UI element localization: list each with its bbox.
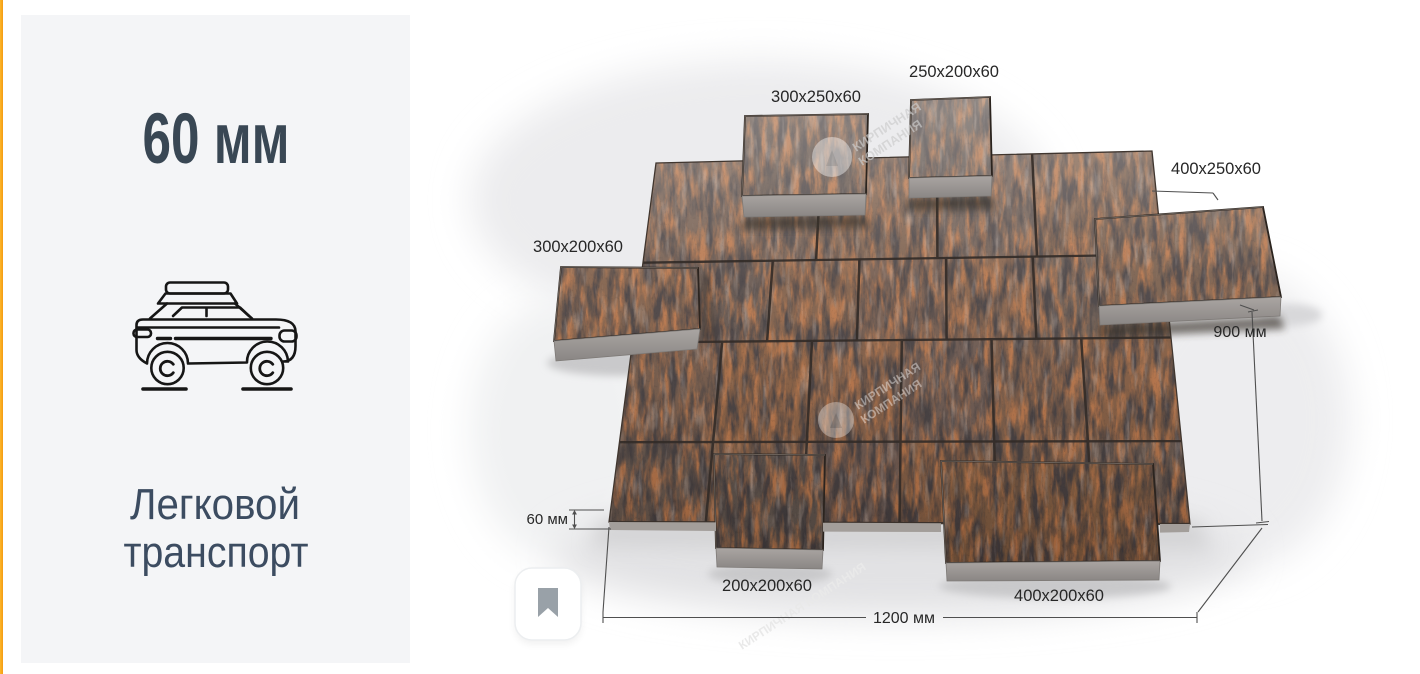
svg-text:900 мм: 900 мм: [1213, 324, 1266, 341]
svg-text:транспорт: транспорт: [124, 528, 309, 577]
svg-text:60 мм: 60 мм: [143, 100, 290, 179]
svg-text:250x200x60: 250x200x60: [909, 63, 999, 81]
svg-text:200x200x60: 200x200x60: [722, 577, 812, 595]
svg-text:300x200x60: 300x200x60: [533, 238, 623, 256]
svg-text:300x250x60: 300x250x60: [771, 88, 861, 106]
svg-text:60 мм: 60 мм: [527, 511, 568, 528]
svg-text:1200 мм: 1200 мм: [873, 610, 935, 627]
svg-text:400x200x60: 400x200x60: [1014, 587, 1104, 605]
svg-text:400x250x60: 400x250x60: [1171, 160, 1261, 178]
svg-text:Легковой: Легковой: [130, 480, 300, 529]
